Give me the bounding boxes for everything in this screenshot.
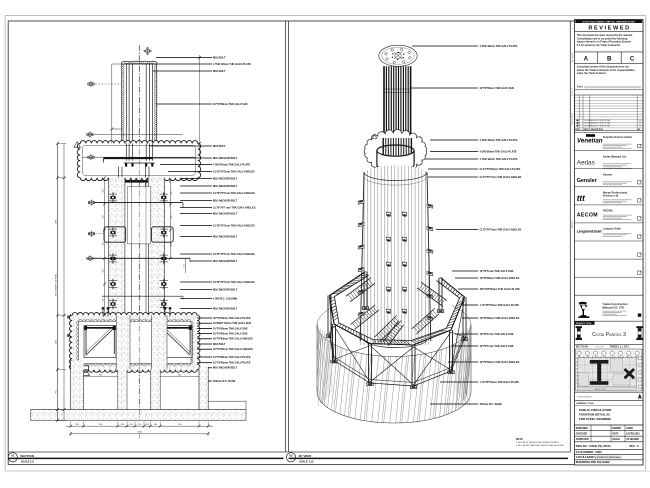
svg-text:10*70*80mm THK GALV SHS: 10*70*80mm THK GALV SHS (480, 86, 515, 90)
svg-text:300: 300 (102, 298, 104, 301)
svg-text:DATE: DATE (612, 433, 619, 436)
svg-text:4 THK 90mm THK GALV PLATE: 4 THK 90mm THK GALV PLATE (480, 44, 518, 48)
svg-text:M16 ANCHOR BOLT: M16 ANCHOR BOLT (213, 156, 238, 160)
svg-text:TW: TW (639, 120, 642, 122)
svg-text:01: 01 (11, 453, 15, 457)
svg-text:10*70*8 mm THK GALV SHS: 10*70*8 mm THK GALV SHS (480, 344, 514, 348)
svg-text:400mm R.C. BASE: 400mm R.C. BASE (213, 379, 236, 383)
svg-text:40*70*50mm THK GALV PLATE: 40*70*50mm THK GALV PLATE (213, 316, 251, 320)
svg-text:10*70*80mm THK GALV SHS: 10*70*80mm THK GALV SHS (213, 332, 248, 336)
svg-text:GUSSET 50mm THK GALV SHS: GUSSET 50mm THK GALV SHS (213, 321, 251, 325)
svg-text:300: 300 (102, 189, 104, 192)
svg-text:Langdon&Seah: Langdon&Seah (577, 229, 602, 233)
svg-text:Gensler: Gensler (577, 178, 598, 184)
svg-text:ttt: ttt (577, 194, 585, 203)
svg-text:PROJECT TITLE: PROJECT TITLE (576, 323, 592, 325)
svg-text:M16 ANCHOR BOLT: M16 ANCHOR BOLT (213, 198, 238, 202)
svg-text:M16 ANCHOR BOLT: M16 ANCHOR BOLT (213, 307, 238, 311)
svg-text:B: B (607, 55, 612, 62)
svg-text:Date :: Date : (577, 85, 585, 89)
svg-text:Aedas (Macau) Ltd.: Aedas (Macau) Ltd. (603, 154, 627, 158)
svg-text:M16 ANCHOR BOLT: M16 ANCHOR BOLT (213, 234, 238, 238)
svg-text:M16 ANCHOR BOLT: M16 ANCHOR BOLT (213, 211, 238, 215)
svg-text:4 THK 90mm THK GALV PLATE: 4 THK 90mm THK GALV PLATE (480, 138, 518, 142)
svg-text:Gensler: Gensler (603, 172, 613, 176)
svg-text:10*70*80mm THK GALV ANGLES: 10*70*80mm THK GALV ANGLES (480, 360, 520, 364)
svg-text:ISSUED FOR APPROVAL: ISSUED FOR APPROVAL (591, 124, 611, 127)
svg-text:02: 02 (289, 453, 293, 457)
svg-text:S_3150B_PQ_85010.dwg: S_3150B_PQ_85010.dwg (595, 457, 621, 459)
svg-text:3D VIEW: 3D VIEW (299, 454, 312, 458)
svg-text:under the Trade Contract.: under the Trade Contract. (577, 72, 607, 75)
svg-text:AECOM: AECOM (577, 213, 598, 219)
svg-text:Yudea Construction: Yudea Construction (602, 302, 628, 306)
svg-text:Venetian: Venetian (577, 138, 603, 145)
svg-text:REV.: REV. (576, 129, 580, 131)
svg-text:300: 300 (171, 191, 173, 194)
svg-text:10*70*80mm THK GALV ANGLES: 10*70*80mm THK GALV ANGLES (480, 316, 520, 320)
svg-text:AS SHOWN: AS SHOWN (626, 438, 639, 441)
svg-text:DATE: DATE (584, 128, 589, 131)
svg-text:LWKD: LWKD (626, 428, 633, 430)
svg-text:Venetian Orient Limited: Venetian Orient Limited (603, 135, 632, 139)
svg-text:R E V I E W E D: R E V I E W E D (588, 26, 629, 32)
svg-text:10*70*80mm THK GALV ANGLES: 10*70*80mm THK GALV ANGLES (213, 337, 253, 341)
svg-text:CL70*70*7mm THK GALV ANGLES: CL70*70*7mm THK GALV ANGLES (213, 252, 255, 256)
svg-text:300: 300 (171, 215, 173, 218)
svg-text:SCALE 1:10: SCALE 1:10 (299, 461, 314, 464)
svg-text:S.T.C.P.S: S.T.C.P.S (596, 347, 604, 349)
svg-text:M16 ANCHOR BOLT: M16 ANCHOR BOLT (213, 366, 238, 370)
svg-text:NOTE:: NOTE: (516, 439, 523, 441)
svg-text:300: 300 (102, 215, 104, 218)
svg-text:4 500*50mm THK GALV PLATE: 4 500*50mm THK GALV PLATE (480, 149, 517, 153)
svg-text:Aedas: Aedas (577, 160, 595, 167)
svg-text:DRAWING TITLE: DRAWING TITLE (576, 402, 594, 405)
svg-text:A: A (584, 55, 589, 62)
svg-text:10*70*80mm THK GALV PLATE: 10*70*80mm THK GALV PLATE (213, 361, 251, 365)
svg-text:CL70*70*7 mm THK GALV ANGLES: CL70*70*7 mm THK GALV ANGLES (213, 205, 256, 209)
svg-text:10*70*80mm THK GALV ANGLES: 10*70*80mm THK GALV ANGLES (480, 276, 520, 280)
svg-text:CL70*70*7mm THK GALV ANGLES: CL70*70*7mm THK GALV ANGLES (213, 280, 255, 284)
svg-text:300: 300 (171, 243, 173, 246)
svg-text:M16 ANCHOR BOLT: M16 ANCHOR BOLT (213, 259, 238, 263)
svg-text:M16 BOLT: M16 BOLT (213, 342, 226, 346)
svg-text:PLOT 1:1: PLOT 1:1 (572, 88, 574, 96)
svg-text:CL70*70*7mm THK GALV ANGLES: CL70*70*7mm THK GALV ANGLES (213, 191, 255, 195)
svg-text:M16 ANCHOR BOLT: M16 ANCHOR BOLT (213, 287, 238, 291)
svg-text:KEY PLAN: KEY PLAN (576, 346, 588, 349)
svg-text:1 10*70*50mm THK GALV PLATE: 1 10*70*50mm THK GALV PLATE (480, 380, 520, 384)
svg-text:14.FEB.2015: 14.FEB.2015 (626, 433, 640, 436)
svg-text:2700 (VERIFY ON SITE): 2700 (VERIFY ON SITE) (55, 274, 57, 296)
svg-text:10*70*80mm THK GALV SHS: 10*70*80mm THK GALV SHS (213, 326, 248, 330)
svg-text:Langdon Seah: Langdon Seah (603, 227, 621, 231)
svg-text:4 THK 90mm THK GALV PLATE: 4 THK 90mm THK GALV PLATE (480, 157, 518, 161)
svg-text:PUBLIC CIRCULATION: PUBLIC CIRCULATION (579, 408, 611, 412)
svg-text:SECTION: SECTION (20, 454, 35, 458)
svg-text:300: 300 (102, 242, 104, 245)
svg-text:A1 594x841: A1 594x841 (571, 52, 574, 62)
svg-text:CHECK PRINT: CHECK PRINT (572, 112, 574, 125)
svg-text:# 300 R.C. COLUMN: # 300 R.C. COLUMN (213, 296, 237, 300)
svg-text:M16 ANCHOR BOLT: M16 ANCHOR BOLT (213, 176, 238, 180)
svg-text:150: 150 (183, 264, 185, 267)
svg-text:TW: TW (639, 125, 642, 127)
svg-text:10*70*8 mm THK GALV SHS: 10*70*8 mm THK GALV SHS (480, 269, 514, 273)
svg-text:C: C (630, 55, 635, 62)
svg-text:CL70*70*7mm THK GALV ANGLES: CL70*70*7mm THK GALV ANGLES (213, 169, 255, 173)
svg-text:M16 BOLT: M16 BOLT (213, 69, 226, 73)
svg-text:PARCEL 1, LOT 2: PARCEL 1, LOT 2 (610, 346, 630, 349)
svg-text:M16 BOLT: M16 BOLT (213, 144, 226, 148)
svg-text:REFERENCE DWG FILE NAME :: REFERENCE DWG FILE NAME : (576, 461, 611, 464)
svg-text:450*100*50mm THK GALV PLATE: 450*100*50mm THK GALV PLATE (480, 287, 521, 291)
svg-text:1. ALL BOLT SHOULD BE FIXING O: 1. ALL BOLT SHOULD BE FIXING ON SITE. (516, 441, 560, 444)
svg-text:M16 BOLT: M16 BOLT (213, 55, 226, 59)
svg-text:DESIGNED: DESIGNED (576, 428, 588, 430)
svg-text:SCALE 1:5: SCALE 1:5 (21, 461, 34, 464)
svg-text:PARCEL 3: PARCEL 3 (571, 220, 574, 229)
svg-text:AECOM: AECOM (603, 209, 613, 213)
svg-text:CL70*70*7mm THK GALV ANGLES: CL70*70*7mm THK GALV ANGLES (213, 223, 255, 227)
svg-text:DWG NO : 3150B_PQ_85010: DWG NO : 3150B_PQ_85010 (576, 444, 611, 448)
svg-text:2. ALL FILLET WELDED SHOULD BE: 2. ALL FILLET WELDED SHOULD BE 6mm THK. (516, 444, 564, 447)
svg-text:4 THK 90mm THK GALV PLATE: 4 THK 90mm THK GALV PLATE (213, 62, 251, 66)
svg-text:10*70*80mm THK GALV SHS: 10*70*80mm THK GALV SHS (213, 102, 248, 106)
svg-text:10*70*80mm THK GALV ANGLES: 10*70*80mm THK GALV ANGLES (213, 347, 253, 351)
svg-text:SITE BOUNDARY: SITE BOUNDARY (577, 395, 592, 398)
svg-text:CAD FILE NAME :: CAD FILE NAME : (576, 456, 596, 459)
svg-text:10*70*8 mm THK GALV SHS: 10*70*8 mm THK GALV SHS (480, 332, 514, 336)
svg-text:300: 300 (102, 269, 104, 272)
svg-text:(Macau) CO. LTD.: (Macau) CO. LTD. (602, 306, 624, 310)
svg-text:400mm R.C. BASE: 400mm R.C. BASE (480, 402, 503, 406)
svg-text:10*70*80mm THK GALV PLATE: 10*70*80mm THK GALV PLATE (213, 355, 251, 359)
svg-text:DO NOT SCALE DRAWING. VERIFY A: DO NOT SCALE DRAWING. VERIFY ALL DIMENSI… (582, 20, 635, 23)
svg-text:CL70*70*7mm THK GALV ANGLES: CL70*70*7mm THK GALV ANGLES (480, 175, 522, 179)
svg-text:CHECKED: CHECKED (576, 434, 588, 436)
svg-text:REV : C: REV : C (630, 444, 640, 448)
svg-text:M16 ANCHOR BOLT: M16 ANCHOR BOLT (213, 184, 238, 188)
svg-text:Services Ltd.: Services Ltd. (603, 194, 619, 198)
svg-text:DESCRIPTION: DESCRIPTION (591, 129, 604, 131)
svg-text:APPROVED: APPROVED (576, 438, 589, 441)
svg-text:ACAD NUMBER : 31506: ACAD NUMBER : 31506 (576, 451, 603, 454)
svg-text:ISSUED FOR APPROVAL: ISSUED FOR APPROVAL (591, 122, 611, 125)
svg-text:TW: TW (639, 123, 642, 125)
svg-text:5.4 for action by the Trade Co: 5.4 for action by the Trade Contractor. (577, 44, 621, 47)
svg-text:FOR STEEL DRAWING: FOR STEEL DRAWING (579, 417, 612, 421)
svg-text:PARCEL 2 (S): PARCEL 2 (S) (594, 388, 606, 391)
svg-text:ISSUED FOR APPROVAL: ISSUED FOR APPROVAL (591, 119, 611, 122)
svg-text:DRAWN: DRAWN (612, 427, 621, 430)
svg-text:FOUNTAIN DETAIL 05: FOUNTAIN DETAIL 05 (579, 413, 610, 417)
svg-text:4 500*50mm THK GALV PLATE: 4 500*50mm THK GALV PLATE (213, 162, 250, 166)
svg-text:CL70*70*7mm THK GALV ANGLES: CL70*70*7mm THK GALV ANGLES (480, 227, 522, 231)
svg-text:SCALE: SCALE (612, 438, 620, 441)
svg-text:CL10*70*50mm THK GALV PLATE: CL10*70*50mm THK GALV PLATE (480, 167, 521, 171)
svg-text:1 10*70*50mm THK GALV PLATE: 1 10*70*50mm THK GALV PLATE (480, 303, 520, 307)
